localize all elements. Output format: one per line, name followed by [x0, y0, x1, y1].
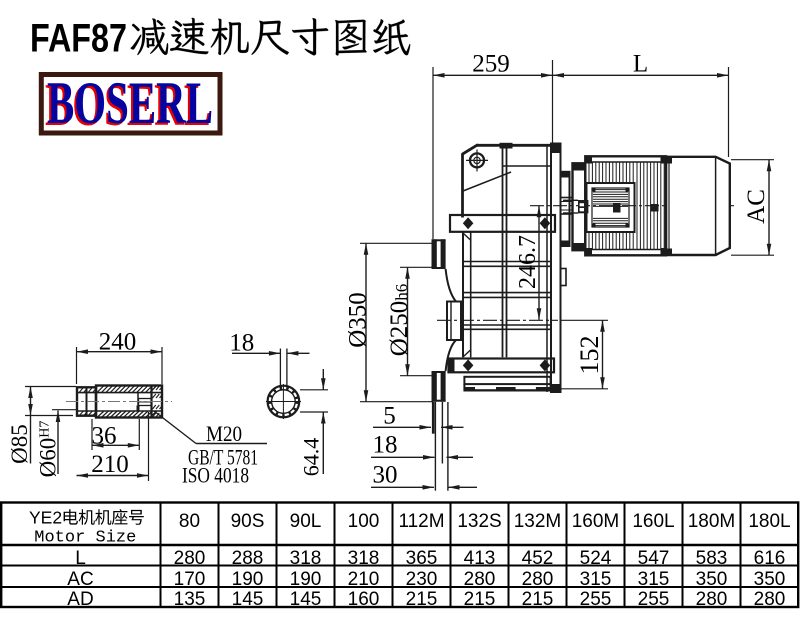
svg-text:L: L [75, 548, 86, 569]
svg-text:30: 30 [373, 462, 398, 489]
svg-text:AC: AC [67, 569, 93, 590]
svg-text:246.7: 246.7 [515, 235, 541, 289]
svg-text:170: 170 [174, 569, 206, 590]
svg-text:190: 190 [232, 569, 264, 590]
svg-text:255: 255 [638, 589, 670, 610]
svg-text:350: 350 [754, 569, 786, 590]
svg-text:547: 547 [638, 548, 670, 569]
svg-text:YE2: YE2 [29, 508, 62, 528]
svg-text:160L: 160L [632, 511, 674, 532]
svg-text:FAF87: FAF87 [30, 17, 127, 61]
svg-text:524: 524 [580, 548, 612, 569]
svg-text:100: 100 [348, 511, 380, 532]
svg-text:18: 18 [373, 432, 398, 459]
svg-text:280: 280 [754, 589, 786, 610]
svg-text:64.4: 64.4 [299, 438, 324, 477]
svg-text:210: 210 [348, 569, 380, 590]
svg-text:5: 5 [383, 403, 396, 430]
svg-text:215: 215 [522, 589, 554, 610]
svg-text:280: 280 [174, 548, 206, 569]
svg-text:160M: 160M [572, 511, 620, 532]
svg-text:135: 135 [174, 589, 206, 610]
svg-text:583: 583 [696, 548, 728, 569]
svg-text:AC: AC [743, 189, 770, 224]
svg-text:452: 452 [522, 548, 554, 569]
svg-text:L: L [633, 51, 648, 78]
svg-text:Ø350: Ø350 [345, 292, 372, 348]
svg-text:259: 259 [472, 51, 510, 78]
svg-text:90L: 90L [290, 511, 322, 532]
svg-text:ISO 4018: ISO 4018 [182, 463, 249, 488]
svg-text:132S: 132S [457, 511, 501, 532]
svg-text:413: 413 [464, 548, 496, 569]
svg-text:280: 280 [464, 569, 496, 590]
svg-text:AD: AD [67, 589, 93, 610]
svg-text:M20: M20 [206, 421, 242, 446]
svg-text:288: 288 [232, 548, 264, 569]
svg-text:152: 152 [575, 336, 604, 375]
svg-text:112M: 112M [398, 511, 444, 532]
svg-text:BOSERL: BOSERL [47, 70, 213, 136]
svg-text:145: 145 [290, 589, 322, 610]
svg-text:318: 318 [348, 548, 380, 569]
svg-text:132M: 132M [514, 511, 562, 532]
svg-text:365: 365 [406, 548, 438, 569]
svg-text:318: 318 [290, 548, 322, 569]
svg-text:145: 145 [232, 589, 264, 610]
svg-text:240: 240 [99, 328, 137, 355]
svg-text:80: 80 [179, 511, 200, 532]
svg-text:210: 210 [91, 451, 129, 478]
svg-text:280: 280 [696, 589, 728, 610]
svg-text:180L: 180L [748, 511, 790, 532]
svg-text:280: 280 [522, 569, 554, 590]
svg-text:160: 160 [348, 589, 380, 610]
svg-text:190: 190 [290, 569, 322, 590]
svg-text:Ø85: Ø85 [7, 424, 32, 464]
svg-text:215: 215 [464, 589, 496, 610]
svg-text:215: 215 [406, 589, 438, 610]
svg-text:350: 350 [696, 569, 728, 590]
svg-text:18: 18 [229, 329, 254, 356]
svg-text:180M: 180M [688, 511, 736, 532]
svg-text:616: 616 [754, 548, 786, 569]
svg-text:315: 315 [638, 569, 670, 590]
svg-text:315: 315 [580, 569, 612, 590]
svg-text:Motor Size: Motor Size [34, 529, 136, 548]
svg-text:90S: 90S [231, 511, 265, 532]
svg-text:36: 36 [92, 422, 117, 449]
svg-text:230: 230 [406, 569, 438, 590]
svg-text:255: 255 [580, 589, 612, 610]
